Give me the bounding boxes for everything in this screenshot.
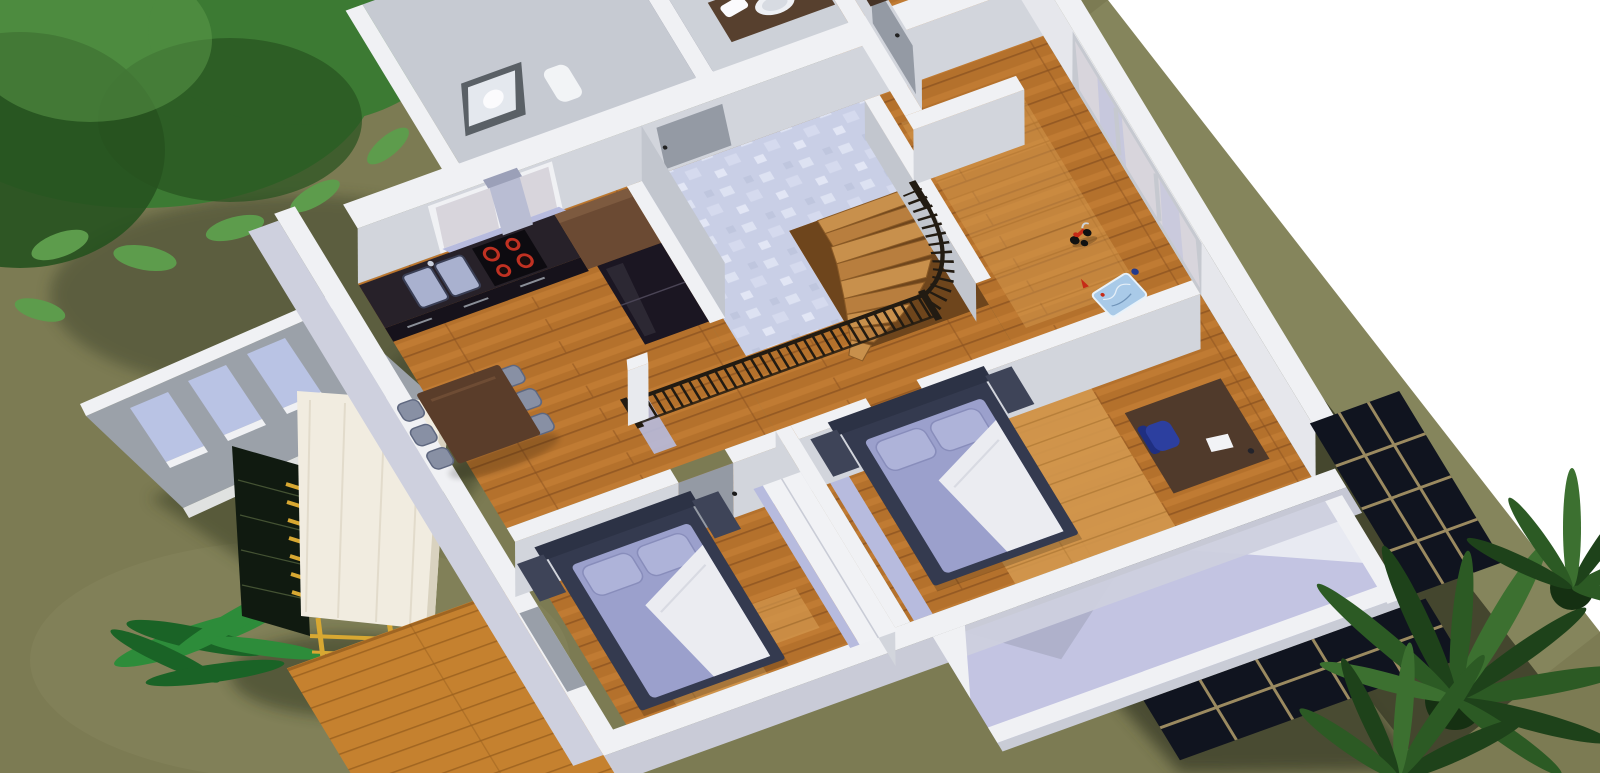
render-canvas [0, 0, 1600, 773]
render-viewport [0, 0, 1600, 773]
